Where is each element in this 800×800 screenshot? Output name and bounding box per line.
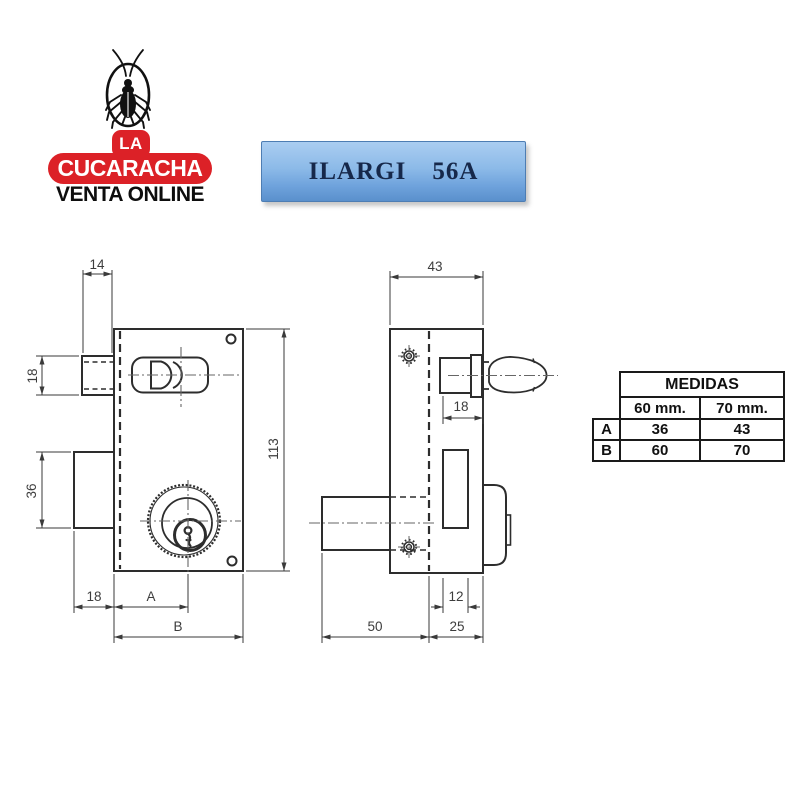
table-corner-blank xyxy=(593,372,620,397)
dim-case-depth: 25 xyxy=(449,619,464,634)
product-sheet: LA CUCARACHA VENTA ONLINE ILARGI 56A xyxy=(0,0,800,800)
table-row: A 36 43 xyxy=(593,419,784,440)
front-view xyxy=(74,329,243,572)
logo-subtitle: VENTA ONLINE xyxy=(44,183,216,207)
logo-name-pill: CUCARACHA xyxy=(48,153,212,184)
table-corner-blank xyxy=(593,397,620,419)
cell-value: 70 xyxy=(700,440,784,461)
table-title-row: MEDIDAS xyxy=(593,372,784,397)
table-col-header: 60 mm. xyxy=(620,397,700,419)
logo-name-text: CUCARACHA xyxy=(58,155,203,182)
table-col-header: 70 mm. xyxy=(700,397,784,419)
dim-cylinder-length: 50 xyxy=(367,619,382,634)
lock-body-side xyxy=(390,329,483,573)
table-row: B 60 70 xyxy=(593,440,784,461)
dim-body-width: B xyxy=(173,619,182,634)
dim-latch-height: 18 xyxy=(25,368,40,383)
cell-value: 60 xyxy=(620,440,700,461)
dim-knob-base: 18 xyxy=(453,399,468,414)
deadbolt xyxy=(74,452,114,528)
dim-body-height: 113 xyxy=(266,438,281,460)
side-view xyxy=(309,329,558,573)
row-label: B xyxy=(593,440,620,461)
cylinder-housing xyxy=(483,485,511,565)
dim-deadbolt-offset: 18 xyxy=(86,589,101,604)
dim-backset: A xyxy=(146,589,155,604)
logo-la-text: LA xyxy=(119,134,143,154)
dim-deadbolt-height: 36 xyxy=(24,483,39,498)
dim-guide-width: 12 xyxy=(448,589,463,604)
table-title: MEDIDAS xyxy=(620,372,784,397)
cell-value: 43 xyxy=(700,419,784,440)
dim-latch-width: 14 xyxy=(89,257,105,272)
table-header-row: 60 mm. 70 mm. xyxy=(593,397,784,419)
dim-body-depth: 43 xyxy=(427,259,442,274)
row-label: A xyxy=(593,419,620,440)
medidas-table: MEDIDAS 60 mm. 70 mm. A 36 43 B 60 70 xyxy=(592,371,785,462)
cell-value: 36 xyxy=(620,419,700,440)
